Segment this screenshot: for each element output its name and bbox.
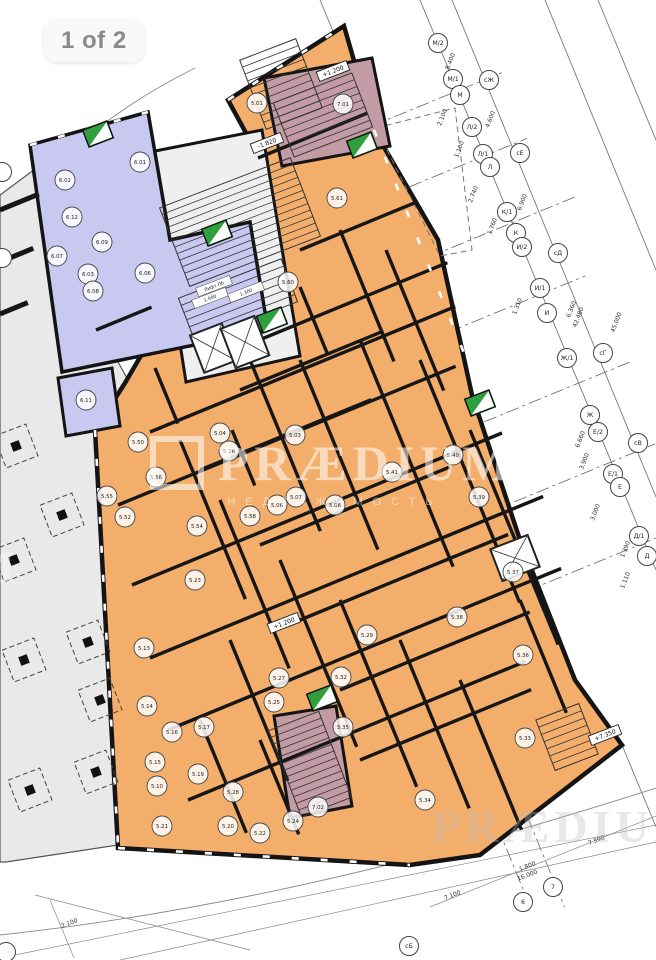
axis-label: М/1	[447, 76, 458, 83]
room-number: 6.07	[51, 254, 63, 260]
floorplan-drawing: Лифт ПБ1.0001.300+1.200-1.820+1.200+7.35…	[0, 0, 656, 960]
room-number: 7.01	[337, 102, 349, 108]
axis-label: М	[457, 92, 462, 99]
room-number: 6.03	[82, 272, 94, 278]
room-number: 5.33	[519, 736, 531, 742]
room-number: 5.28	[227, 790, 240, 796]
room-number: 5.56	[150, 475, 163, 481]
room-number: 5.24	[287, 819, 300, 825]
room-number: 5.08	[329, 503, 342, 509]
dimension-label: 3.000	[589, 503, 602, 522]
dimension-label: 7.100	[443, 889, 462, 902]
axis-label: Е/2	[593, 429, 603, 436]
room-number: 5.50	[132, 440, 145, 446]
photo-counter-label: 1 of 2	[61, 27, 127, 54]
room-number: 5.16	[166, 730, 179, 736]
dimension-label: 45.000	[610, 311, 624, 333]
room-number: 5.32	[335, 675, 347, 681]
dimension-label: 1.110	[619, 571, 632, 590]
axis-label: И	[545, 310, 550, 317]
axis-label: сЕ	[516, 150, 523, 157]
room-number: 5.55	[101, 494, 113, 500]
dimension-label: 3.900	[578, 452, 591, 471]
room-number: 5.20	[222, 824, 235, 830]
axis-bubble	[0, 943, 16, 960]
dimension-label: 1.390	[619, 540, 632, 559]
axis-bubble	[0, 163, 12, 182]
room-number: 5.13	[138, 646, 150, 652]
axis-label: Л/2	[467, 124, 478, 131]
room-number: 5.40	[447, 453, 460, 459]
dimension-label: 2.100	[436, 108, 449, 127]
axis-label: Д/1	[634, 533, 645, 540]
room-number: 5.19	[192, 772, 205, 778]
axis-label: И/1	[535, 285, 546, 292]
dimension-label: 1.100	[453, 140, 466, 159]
room-number: 5.29	[361, 633, 374, 639]
room-number: 5.52	[119, 515, 131, 521]
axis-label: И/2	[517, 244, 528, 251]
axis-label: 6	[521, 899, 525, 906]
room-number: 6.06	[139, 271, 152, 277]
axis-label: М/2	[432, 40, 443, 47]
axis-label: сВ	[634, 440, 642, 447]
room-number: 5.15	[149, 760, 161, 766]
axis-label: К	[514, 230, 519, 237]
room-number: 5.58	[244, 514, 257, 520]
room-number: 6.12	[66, 215, 78, 221]
room-number: 6.08	[87, 289, 100, 295]
room-number: 5.06	[271, 503, 284, 509]
room-number: 6.11	[80, 398, 92, 404]
axis-label: сБ	[405, 943, 413, 950]
axis-label: 7	[551, 884, 555, 891]
room-number: 5.41	[386, 470, 398, 476]
room-number: 5.39	[473, 495, 486, 501]
room-number: 5.36	[517, 653, 530, 659]
room-number: 5.04	[214, 431, 227, 437]
room-number: 5.35	[337, 725, 349, 731]
dimension-label: 4.600	[484, 110, 497, 129]
dimension-label: 6.660	[574, 430, 587, 449]
room-number: 5.17	[198, 725, 210, 731]
room-number: 5.38	[451, 615, 464, 621]
room-number: 6.02	[59, 178, 71, 184]
room-number: 5.26	[223, 449, 236, 455]
room-number: 6.01	[134, 160, 146, 166]
dimension-label: 8.400	[444, 52, 457, 71]
room-number: 5.25	[268, 700, 280, 706]
grid-line	[545, 0, 656, 270]
room-number: 5.27	[273, 676, 285, 682]
axis-label: сД	[554, 250, 562, 257]
axis-label: Д	[645, 553, 650, 560]
room-number: 5.07	[290, 495, 302, 501]
dimension-label: 1.310	[511, 297, 524, 316]
room-number: 5.37	[507, 570, 519, 576]
dimension-label: 2.740	[467, 185, 480, 204]
dimension-label: 7.590	[587, 834, 606, 847]
dimension-label: 2.100	[60, 917, 79, 930]
dimension-label: 6.900	[516, 193, 529, 212]
room-number: 5.23	[189, 578, 201, 584]
room-number: 5.01	[251, 101, 263, 107]
room-number: 5.21	[156, 824, 168, 830]
grid-line	[598, 0, 656, 140]
axis-label: К/1	[502, 209, 512, 216]
room-number: 6.09	[96, 240, 109, 246]
dimension-label: 1.760	[486, 217, 499, 236]
axis-label: Ж	[587, 412, 594, 419]
room-number: 5.61	[331, 196, 343, 202]
axis-label: сЖ	[484, 77, 494, 84]
grid-line	[622, 745, 656, 827]
room-number: 7.02	[312, 805, 324, 811]
axis-label: Е	[618, 484, 622, 491]
photo-counter-badge: 1 of 2	[44, 20, 144, 62]
axis-label: Ж/1	[561, 355, 574, 362]
room-number: 5.54	[191, 524, 204, 530]
floorplan-photo[interactable]: Лифт ПБ1.0001.300+1.200-1.820+1.200+7.35…	[0, 0, 656, 960]
room-number: 5.34	[419, 798, 432, 804]
room-number: 5.14	[141, 704, 154, 710]
room-number: 5.22	[254, 831, 266, 837]
axis-label: сГ	[599, 350, 606, 357]
room-number: 5.03	[289, 433, 301, 439]
axis-label: Е/1	[608, 471, 618, 478]
axis-label: Л/1	[478, 151, 489, 158]
axis-label: Л	[488, 164, 493, 171]
room-number: 5.10	[151, 784, 164, 790]
room-number: 5.60	[282, 280, 295, 286]
